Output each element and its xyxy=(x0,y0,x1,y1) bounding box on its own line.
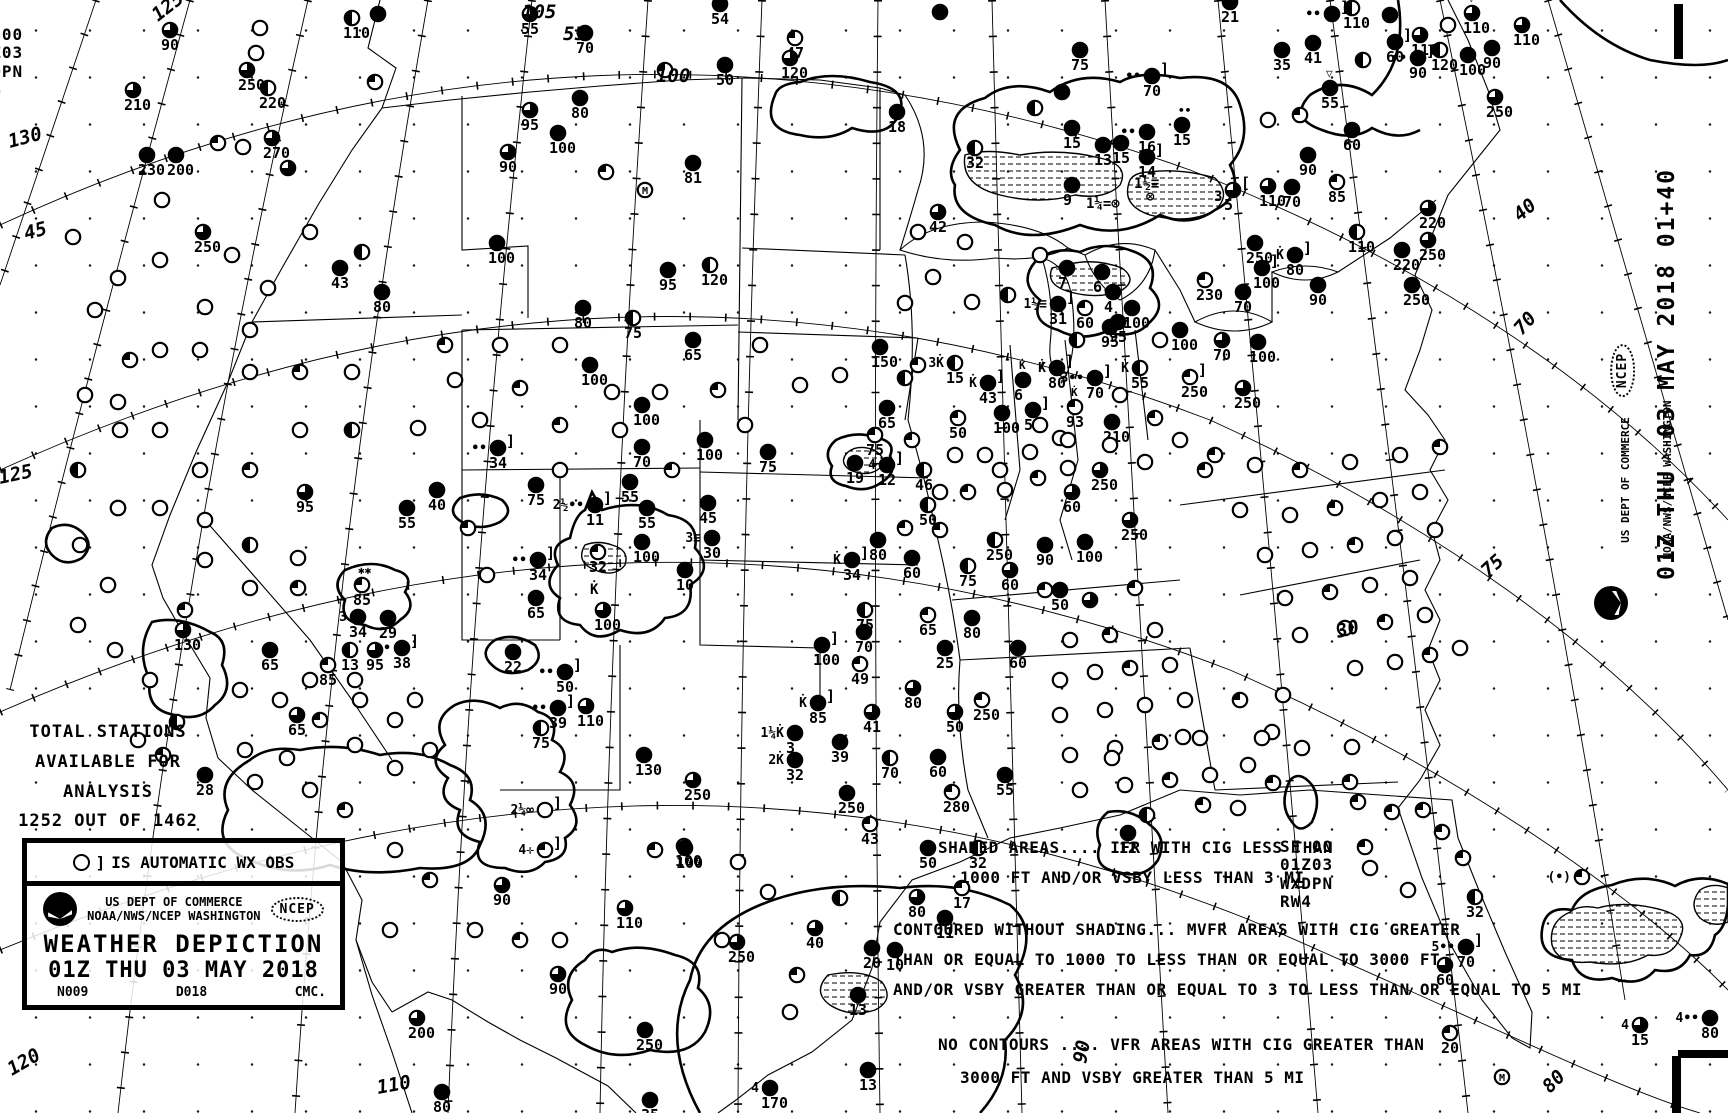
graticule-label: 130 xyxy=(6,123,45,153)
station-plot: 90 xyxy=(161,23,179,54)
station-ceiling: 41 xyxy=(863,718,881,736)
station-ceiling: 65 xyxy=(919,621,937,639)
chart-datetime: 01Z THU 03 MAY 2018 xyxy=(27,958,340,983)
station-plot xyxy=(193,463,207,477)
station-ceiling: 100 xyxy=(633,411,660,429)
station-plot xyxy=(1345,740,1359,754)
station-plot: 110 xyxy=(1411,28,1438,59)
station-weather: •• xyxy=(1305,7,1321,22)
station-ceiling: 60 xyxy=(1343,136,1361,154)
station-plot xyxy=(423,873,437,887)
station-plot: 50 xyxy=(716,58,734,89)
station-plot: 70 xyxy=(1234,285,1252,316)
station-plot: (•) xyxy=(1548,870,1590,885)
station-ceiling: 250 xyxy=(1121,526,1148,544)
station-ceiling: 130 xyxy=(635,761,662,779)
station-plot xyxy=(293,365,307,379)
stats-line: ANALYSIS xyxy=(8,778,208,808)
station-plot xyxy=(198,300,212,314)
station-plot: 250 xyxy=(838,786,865,817)
station-plot xyxy=(1031,471,1045,485)
station-plot xyxy=(513,933,527,947)
station-plot: 80 xyxy=(373,285,391,316)
auto-obs-marker: ] xyxy=(546,544,555,562)
station-ceiling: 50 xyxy=(919,854,937,872)
auto-obs-note: ] IS AUTOMATIC WX OBS xyxy=(27,843,340,886)
station-plot xyxy=(1416,803,1430,817)
station-plot xyxy=(933,485,947,499)
station-weather: 4•• xyxy=(1676,1011,1699,1026)
station-plot xyxy=(1295,741,1309,755)
station-plot xyxy=(1233,693,1247,707)
station-weather: 3•• xyxy=(1061,371,1084,386)
station-plot: 50••] xyxy=(538,656,582,696)
weather-annotation: K̇ xyxy=(590,580,599,598)
station-plot: 100 xyxy=(633,535,660,566)
station-plot xyxy=(338,803,352,817)
station-plot xyxy=(1153,735,1167,749)
station-plot: 110 xyxy=(1348,225,1375,256)
auto-obs-marker: ] xyxy=(830,629,839,647)
station-ceiling: 49 xyxy=(851,670,869,688)
station-plot xyxy=(123,353,137,367)
station-plot: 100 xyxy=(676,841,703,872)
station-ceiling: 13 xyxy=(859,1076,877,1094)
station-ceiling: 100 xyxy=(1076,548,1103,566)
legend-note-line: CONTOURED WITHOUT SHADING... MVFR AREAS … xyxy=(893,920,1460,939)
station-weather: •• xyxy=(538,665,554,680)
station-plot: 100 xyxy=(1076,535,1103,566)
station-plot xyxy=(303,783,317,797)
station-plot xyxy=(715,933,729,947)
station-plot xyxy=(211,136,225,150)
product-id-line: RW4 xyxy=(0,81,23,99)
station-plot xyxy=(1403,571,1417,585)
station-ceiling: 70 xyxy=(1086,384,1104,402)
station-plot xyxy=(738,418,752,432)
station-plot xyxy=(1061,433,1075,447)
station-ceiling: 45 xyxy=(699,509,717,527)
auto-obs-marker: ] xyxy=(566,692,575,710)
station-plot: 32 xyxy=(1466,890,1484,921)
station-plot: 80 xyxy=(433,1085,451,1113)
station-plot xyxy=(371,7,385,21)
station-plot xyxy=(1163,773,1177,787)
station-weather: K̇ xyxy=(1121,360,1129,376)
station-weather: K̇ xyxy=(1038,360,1046,376)
auto-obs-marker: ] xyxy=(553,834,562,852)
station-plot: 55 xyxy=(996,768,1014,799)
station-plot: 75 xyxy=(959,559,977,590)
station-plot: 250 xyxy=(1121,513,1148,544)
station-ceiling: 10 xyxy=(676,576,694,594)
svg-text:M: M xyxy=(1499,1073,1505,1084)
station-plot xyxy=(599,165,613,179)
station-ceiling: 170 xyxy=(761,1094,788,1112)
station-plot xyxy=(1178,693,1192,707)
station-plot: 70 xyxy=(633,440,651,471)
station-plot xyxy=(911,225,925,239)
auto-obs-marker: ] xyxy=(1065,352,1074,370)
station-ceiling: 20 xyxy=(863,954,881,972)
station-ceiling: 75 xyxy=(759,458,777,476)
station-ceiling: 270 xyxy=(263,144,290,162)
station-plot xyxy=(243,463,257,477)
graticule-label: 80 xyxy=(1538,1066,1570,1098)
station-ceiling: 15 xyxy=(1063,134,1081,152)
station-weather: 4 xyxy=(868,458,876,473)
station-plot: 250] xyxy=(1181,361,1208,401)
station-plot: 70••] xyxy=(1125,60,1169,100)
station-plot: 55 xyxy=(398,501,416,532)
station-ceiling: 55 xyxy=(1321,94,1339,112)
station-plot: 50 xyxy=(919,841,937,872)
station-plot: 250 xyxy=(1091,463,1118,494)
station-ceiling: 110 xyxy=(1513,31,1540,49)
station-plot xyxy=(1148,411,1162,425)
station-plot xyxy=(303,673,317,687)
station-plot: 110 xyxy=(343,11,370,42)
station-plot: 13 xyxy=(859,1063,877,1094)
svg-text:M: M xyxy=(642,186,648,197)
station-plot xyxy=(291,581,305,595)
station-plot xyxy=(355,245,369,259)
station-ceiling: 30 xyxy=(703,544,721,562)
product-id-block-topleft: SF 0001Z03WXDPNRW4 xyxy=(0,26,23,100)
station-plot xyxy=(198,553,212,567)
registration-bar-bottom-right-v xyxy=(1672,1056,1681,1113)
station-plot: 22 xyxy=(504,645,522,676)
station-ceiling: 100 xyxy=(594,616,621,634)
station-plot xyxy=(1388,655,1402,669)
station-plot xyxy=(965,295,979,309)
auto-obs-marker: ] xyxy=(1066,288,1075,306)
auto-obs-marker: ] xyxy=(1155,141,1164,159)
station-plot xyxy=(113,423,127,437)
mvfr-contour xyxy=(453,494,508,527)
station-ceiling: 13 xyxy=(1094,151,1112,169)
graticule-label: 110 xyxy=(375,1071,413,1099)
station-weather: K̇ xyxy=(969,375,977,391)
auto-obs-marker: ] xyxy=(603,489,612,507)
graticule-label: 75 xyxy=(1477,550,1509,582)
auto-obs-marker: ] xyxy=(826,687,835,705)
station-ceiling: 34 xyxy=(843,566,861,584)
station-plot: 250 xyxy=(973,693,1000,724)
station-symbol: K̇ xyxy=(1071,385,1078,399)
station-ceiling: 46 xyxy=(915,476,933,494)
station-plot: 250 xyxy=(684,773,711,804)
station-plot: 100 xyxy=(594,603,621,634)
station-plot: 80 xyxy=(571,91,589,122)
station-plot xyxy=(1088,665,1102,679)
station-ceiling: 80 xyxy=(869,546,887,564)
station-ceiling: 100 xyxy=(1123,314,1150,332)
station-ceiling: 110 xyxy=(1463,19,1490,37)
total-stations-note: TOTAL STATIONSAVAILABLE FORANALYSIS1252 … xyxy=(8,718,208,837)
station-ceiling: 5 xyxy=(1224,196,1233,214)
station-ceiling: 250 xyxy=(973,706,1000,724)
station-plot: 65 xyxy=(527,591,545,622)
station-plot xyxy=(111,501,125,515)
station-ceiling: 250 xyxy=(1403,291,1430,309)
station-plot: 85 xyxy=(319,658,337,689)
stats-line: TOTAL STATIONS xyxy=(8,718,208,748)
station-weather: 2½•• xyxy=(553,498,584,513)
station-plot xyxy=(933,5,947,19)
station-plot xyxy=(1423,648,1437,662)
station-plot xyxy=(225,248,239,262)
ifr-area xyxy=(1551,904,1682,963)
station-plot: 250 xyxy=(728,935,755,966)
station-ceiling: 29 xyxy=(379,624,397,642)
station-plot: 70 xyxy=(1283,180,1301,211)
station-ceiling: 90 xyxy=(1299,161,1317,179)
station-plot: 43 xyxy=(861,817,879,848)
station-plot xyxy=(1293,628,1307,642)
station-plot xyxy=(348,738,362,752)
auto-obs-marker: ] xyxy=(1474,931,1483,949)
station-plot xyxy=(1373,493,1387,507)
side-banner-dept: US DEPT OF COMMERCE NOAA/NWS/NCEP WASHIN… xyxy=(1590,380,1704,580)
chart-codes: N009 D018 CMC. xyxy=(27,983,340,1000)
station-ceiling: 75 xyxy=(1071,56,1089,74)
auto-obs-bracket: ] xyxy=(96,853,106,872)
station-plot: 80 xyxy=(963,611,981,642)
station-plot: 75 xyxy=(759,445,777,476)
station-plot xyxy=(1063,748,1077,762)
station-ceiling: 15 xyxy=(1631,1031,1649,1049)
station-plot xyxy=(1266,776,1280,790)
station-plot xyxy=(1418,608,1432,622)
station-ceiling: 70 xyxy=(1283,193,1301,211)
station-weather: 3K̇ xyxy=(928,355,944,371)
station-plot: 25 xyxy=(936,641,954,672)
station-plot: 130 xyxy=(635,748,662,779)
station-ceiling: 70 xyxy=(881,764,899,782)
station-plot: 18 xyxy=(888,105,906,136)
station-plot xyxy=(345,365,359,379)
mvfr-contour xyxy=(1284,776,1317,829)
station-plot: 15 xyxy=(1112,136,1130,167)
station-plot xyxy=(1278,591,1292,605)
station-ceiling: 90 xyxy=(493,891,511,909)
station-ceiling: 43 xyxy=(979,389,997,407)
station-plot: 250 xyxy=(1419,233,1446,264)
station-plot: 46 xyxy=(915,463,933,494)
station-plot: 100 xyxy=(1123,301,1150,332)
station-plot xyxy=(1198,463,1212,477)
station-plot: 29 xyxy=(379,611,397,642)
station-plot xyxy=(388,713,402,727)
station-ceiling: 70 xyxy=(855,638,873,656)
station-plot xyxy=(111,395,125,409)
auto-obs-marker: ] xyxy=(895,449,904,467)
station-plot xyxy=(1028,101,1042,115)
station-plot: 60 xyxy=(929,750,947,781)
station-plot: 70 xyxy=(855,625,873,656)
station-plot xyxy=(313,713,327,727)
auto-obs-marker: ] xyxy=(1270,252,1279,270)
station-plot: 75 xyxy=(624,311,642,342)
station-ceiling: 35 xyxy=(1273,56,1291,74)
station-plot xyxy=(793,378,807,392)
station-plot xyxy=(1033,418,1047,432)
station-plot xyxy=(1070,333,1084,347)
station-plot xyxy=(280,751,294,765)
station-plot: 85K̇] xyxy=(799,687,835,727)
station-ceiling: 70 xyxy=(1457,953,1475,971)
auto-obs-marker: ] xyxy=(553,794,562,812)
station-plot xyxy=(1293,108,1307,122)
station-plot: 45 xyxy=(699,496,717,527)
station-plot xyxy=(553,463,567,477)
station-ceiling: 250 xyxy=(1181,383,1208,401)
station-ceiling: 32 xyxy=(1466,903,1484,921)
station-plot: 110 xyxy=(1343,1,1370,32)
station-ceiling: 280 xyxy=(943,798,970,816)
station-plot xyxy=(905,433,919,447)
station-plot xyxy=(78,388,92,402)
station-plot: 13 xyxy=(341,643,359,674)
station-plot xyxy=(1123,661,1137,675)
station-ceiling: 13 xyxy=(849,1001,867,1019)
station-plot: 60 xyxy=(1076,301,1094,332)
station-plot: 200 xyxy=(408,1011,435,1042)
station-plot xyxy=(1153,333,1167,347)
station-plot xyxy=(1196,798,1210,812)
code-n009: N009 xyxy=(57,985,88,1000)
station-plot xyxy=(1113,388,1127,402)
station-ceiling: 90 xyxy=(499,158,517,176)
graticule-label: 70 xyxy=(1509,308,1541,340)
station-plot xyxy=(193,343,207,357)
station-plot xyxy=(1103,438,1117,452)
station-plot xyxy=(493,338,507,352)
auto-obs-marker: ] xyxy=(996,367,1005,385)
auto-obs-marker: ] xyxy=(573,656,582,674)
station-plot xyxy=(473,413,487,427)
auto-obs-marker: ] xyxy=(506,432,515,450)
station-ceiling: 110 xyxy=(343,24,370,42)
station-plot xyxy=(155,193,169,207)
station-ceiling: 110 xyxy=(1348,238,1375,256)
station-plot: 55K̇ xyxy=(1121,360,1149,392)
station-plot xyxy=(993,463,1007,477)
station-plot: 65 xyxy=(288,708,306,739)
dept-of-commerce-label: US DEPT OF COMMERCE NOAA/NWS/NCEP WASHIN… xyxy=(87,895,260,924)
station-ceiling: 39 xyxy=(549,714,567,732)
station-plot: 41 xyxy=(863,705,881,736)
state-borders xyxy=(152,0,1532,1113)
station-plot xyxy=(665,463,679,477)
station-plot: 90 xyxy=(499,145,517,176)
station-plot xyxy=(1343,775,1357,789)
station-plot xyxy=(345,423,359,437)
station-plot xyxy=(388,843,402,857)
station-plot xyxy=(71,618,85,632)
station-plot: 65 xyxy=(684,333,702,364)
station-plot: 55 xyxy=(621,475,639,506)
station-plot xyxy=(1193,731,1207,745)
station-plot: 42 xyxy=(929,205,947,236)
station-ceiling: 220 xyxy=(259,94,286,112)
registration-bar-bottom-right-h xyxy=(1678,1050,1728,1058)
station-plot xyxy=(1435,825,1449,839)
station-plot: 303≡ xyxy=(685,531,721,562)
station-plot xyxy=(653,385,667,399)
station-ceiling: 70 xyxy=(1234,298,1252,316)
station-plot: 75 xyxy=(527,478,545,509)
station-plot xyxy=(1351,795,1365,809)
station-ceiling: 65 xyxy=(527,604,545,622)
product-id-line: RW4 xyxy=(1280,893,1333,911)
station-weather: 4 xyxy=(1621,1018,1629,1033)
station-weather: 4✛ xyxy=(518,843,534,858)
station-ceiling: 65 xyxy=(684,346,702,364)
station-weather: 2K̇ xyxy=(768,752,784,768)
graticule-label: 40 xyxy=(1509,194,1541,226)
station-plot: 60 xyxy=(1009,641,1027,672)
station-ceiling: 200 xyxy=(167,161,194,179)
graticule-label: 55 xyxy=(563,23,586,45)
station-plot xyxy=(303,225,317,239)
station-ceiling: 85 xyxy=(1328,188,1346,206)
station-plot xyxy=(753,338,767,352)
station-plot: 80 xyxy=(869,533,887,564)
station-plot xyxy=(513,381,527,395)
station-ceiling: 70 xyxy=(633,453,651,471)
station-plot xyxy=(383,923,397,937)
station-plot: 20 xyxy=(1441,1026,1459,1057)
station-plot: 35 xyxy=(641,1093,659,1113)
station-ceiling: 34 xyxy=(529,566,547,584)
station-ceiling: 85 xyxy=(319,671,337,689)
station-weather: •• xyxy=(1391,51,1407,66)
station-plot: 120 xyxy=(701,258,728,289)
station-plot: 95 xyxy=(1109,315,1127,346)
station-plot xyxy=(978,448,992,462)
station-plot xyxy=(178,603,192,617)
station-plot xyxy=(961,485,975,499)
station-plot: 40 xyxy=(806,921,824,952)
weather-annotation: 3 xyxy=(1214,189,1222,205)
station-plot xyxy=(898,371,912,385)
station-plot: 85 xyxy=(1328,175,1346,206)
station-plot xyxy=(761,885,775,899)
station-ceiling: 60 xyxy=(903,564,921,582)
station-plot: 100 xyxy=(696,433,723,464)
station-ceiling: 110 xyxy=(1411,41,1438,59)
station-plot xyxy=(613,423,627,437)
station-weather: •• xyxy=(471,441,487,456)
station-ceiling: 200 xyxy=(408,1024,435,1042)
station-plot: 65 xyxy=(878,401,896,432)
station-plot xyxy=(553,418,567,432)
station-plot: 5[ xyxy=(1224,174,1250,214)
side-dept-line2: NOAA/NWS/NCEP WASHINGTON xyxy=(1661,380,1675,580)
legend-note-line: NO CONTOURS .... VFR AREAS WITH CIG GREA… xyxy=(938,1035,1424,1054)
station-plot: 90 xyxy=(1299,148,1317,179)
station-ceiling: 100 xyxy=(696,446,723,464)
station-ceiling: 100 xyxy=(676,854,703,872)
station-plot xyxy=(1103,628,1117,642)
station-plot: 95 xyxy=(366,643,384,674)
station-plot xyxy=(1348,661,1362,675)
station-plot xyxy=(1038,583,1052,597)
station-plot: 21 xyxy=(1221,0,1239,26)
station-plot: 40 xyxy=(428,483,446,514)
